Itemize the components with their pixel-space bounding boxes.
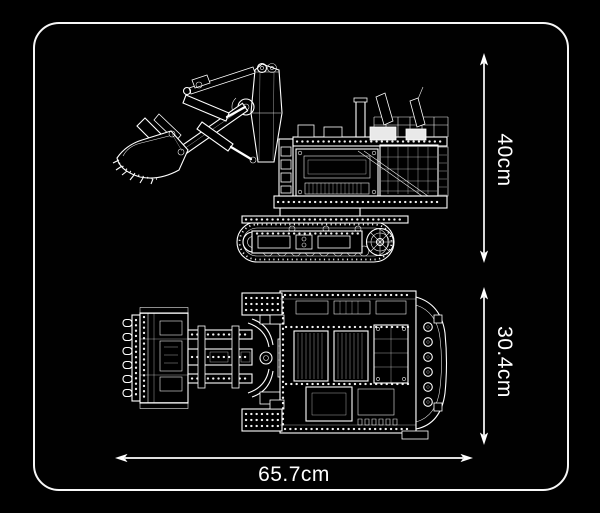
depth-dimension-label: 30.4cm (492, 326, 516, 398)
height-dimension-label: 40cm (492, 133, 516, 186)
excavator-top-view-drawing (110, 283, 455, 448)
page-background: 40cm 30.4cm 65.7cm (0, 0, 600, 513)
product-dimensions-panel: 40cm 30.4cm 65.7cm (33, 22, 569, 491)
excavator-side-view-drawing (112, 55, 462, 270)
length-dimension-label: 65.7cm (258, 463, 330, 487)
depth-dimension-arrow (477, 286, 491, 446)
height-dimension-arrow (477, 52, 491, 264)
